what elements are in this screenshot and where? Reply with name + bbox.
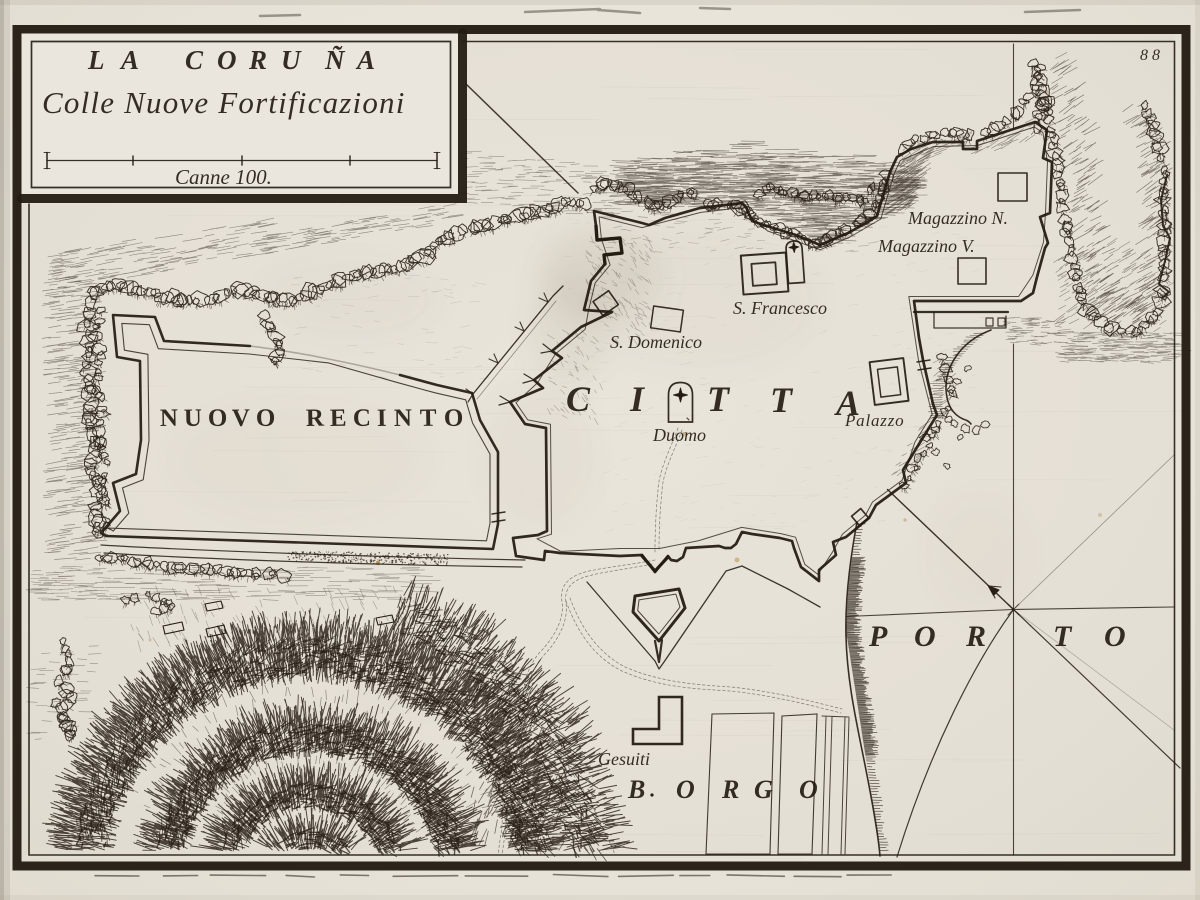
svg-text:O: O xyxy=(676,775,695,804)
svg-text:S. Domenico: S. Domenico xyxy=(610,332,702,352)
svg-text:Gesuiti: Gesuiti xyxy=(598,749,650,769)
svg-text:Ñ: Ñ xyxy=(324,45,346,75)
svg-text:S. Francesco: S. Francesco xyxy=(733,298,827,318)
svg-text:C: C xyxy=(353,405,372,432)
svg-text:A: A xyxy=(119,45,139,75)
svg-text:T: T xyxy=(707,379,731,419)
svg-text:R: R xyxy=(306,405,325,432)
svg-text:U: U xyxy=(184,405,203,432)
svg-text:E: E xyxy=(330,405,347,432)
svg-text:C: C xyxy=(185,45,204,75)
svg-text:I: I xyxy=(377,405,387,432)
svg-text:T: T xyxy=(420,405,437,432)
svg-text:Magazzino V.: Magazzino V. xyxy=(877,236,975,256)
svg-text:R: R xyxy=(248,45,267,75)
svg-text:Magazzino N.: Magazzino N. xyxy=(907,208,1008,228)
svg-text:N: N xyxy=(394,405,413,432)
svg-text:V: V xyxy=(232,405,251,432)
svg-text:Palazzo: Palazzo xyxy=(844,411,904,430)
svg-text:R: R xyxy=(721,775,739,804)
svg-text:O: O xyxy=(217,45,237,75)
svg-text:U: U xyxy=(281,45,302,75)
svg-text:8 8: 8 8 xyxy=(1140,47,1160,64)
svg-text:O: O xyxy=(914,620,936,653)
svg-text:O: O xyxy=(208,405,228,432)
svg-text:P: P xyxy=(868,620,888,653)
svg-text:O: O xyxy=(256,405,276,432)
svg-text:L: L xyxy=(87,45,105,75)
svg-text:C: C xyxy=(566,379,591,419)
svg-text:A: A xyxy=(355,45,375,75)
svg-text:O: O xyxy=(444,405,464,432)
svg-text:I: I xyxy=(629,379,646,419)
svg-text:O: O xyxy=(799,775,818,804)
svg-text:T: T xyxy=(770,380,794,420)
svg-text:G: G xyxy=(754,775,773,804)
svg-text:B: B xyxy=(627,775,645,804)
svg-text:Colle Nuove Fortificazioni: Colle Nuove Fortificazioni xyxy=(42,85,406,120)
svg-text:Duomo: Duomo xyxy=(652,425,706,445)
svg-text:T: T xyxy=(1053,620,1073,653)
svg-text:N: N xyxy=(160,405,179,432)
svg-text:Canne 100.: Canne 100. xyxy=(175,165,272,189)
svg-text:R: R xyxy=(965,620,986,653)
svg-text:O: O xyxy=(1104,620,1126,653)
